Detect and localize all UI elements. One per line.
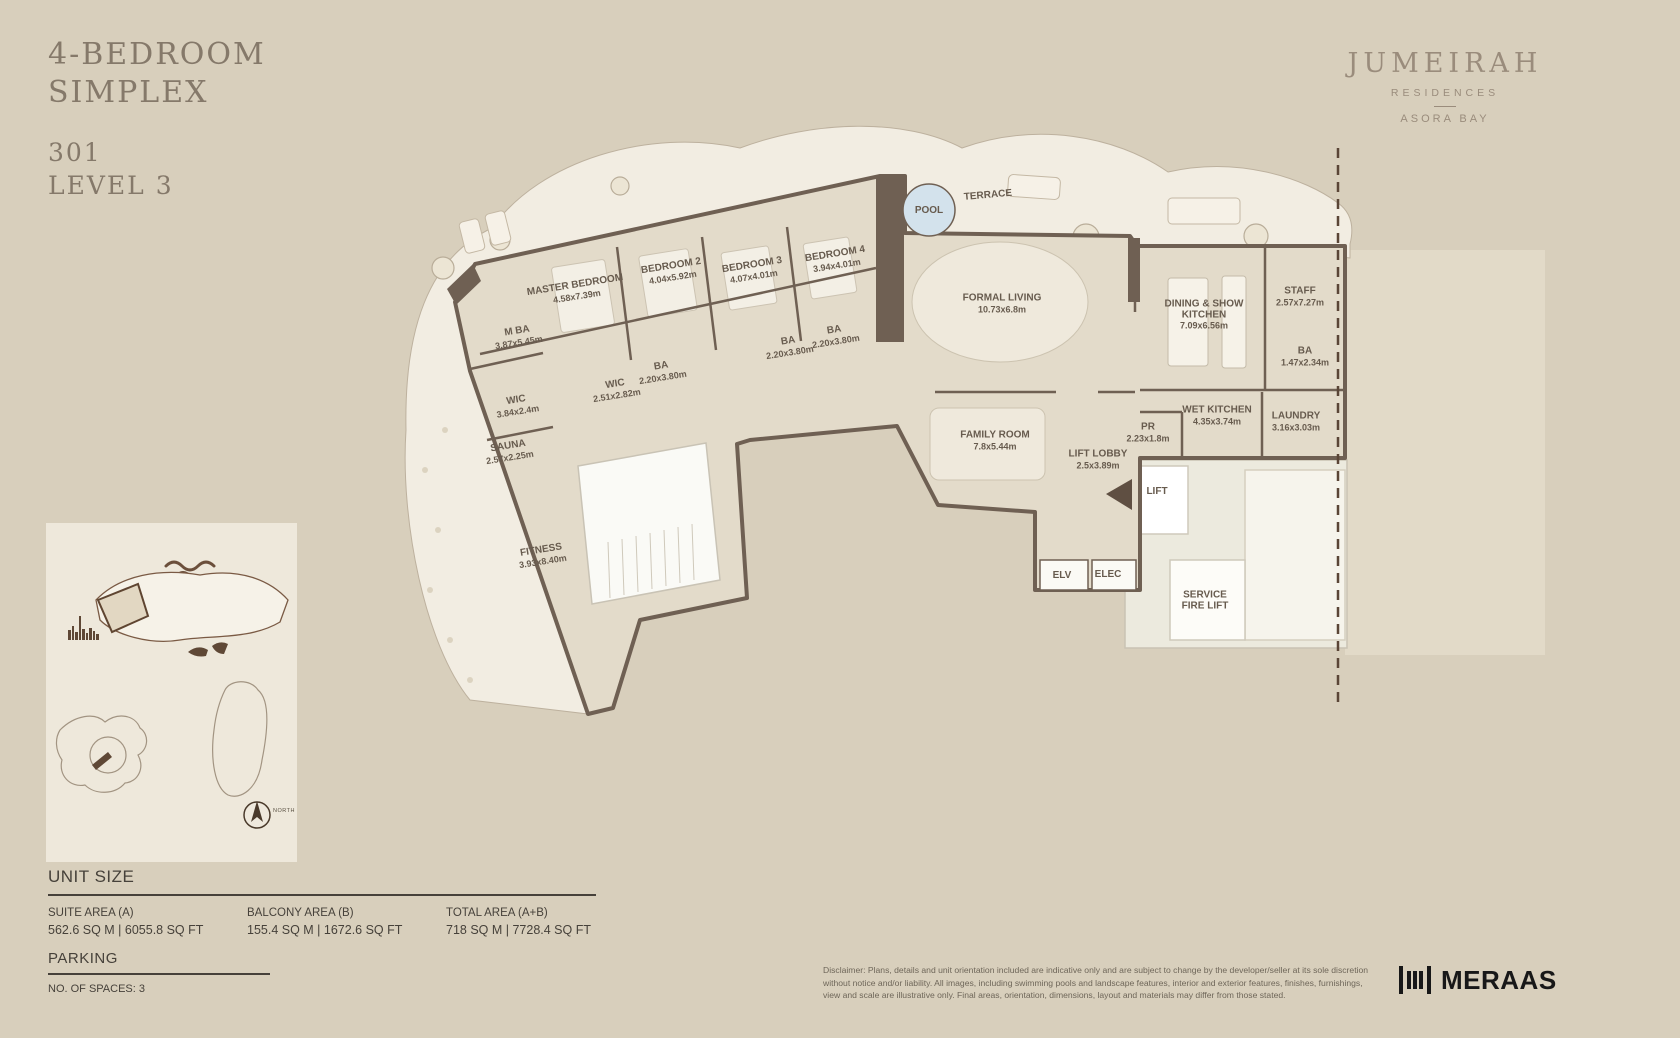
disclaimer-text: Disclaimer: Plans, details and unit orie…: [823, 964, 1375, 1002]
elv-elec-rooms: [1040, 560, 1136, 590]
stairs: [578, 443, 720, 604]
balcony-area-value: 155.4 SQ M | 1672.6 SQ FT: [247, 923, 446, 937]
parking-spaces: NO. OF SPACES: 3: [48, 983, 270, 995]
total-area-label: TOTAL AREA (A+B): [446, 907, 596, 919]
parking-heading: PARKING: [48, 950, 270, 967]
meraas-logo: MERAAS: [1397, 962, 1557, 998]
balcony-area-label: BALCONY AREA (B): [247, 907, 446, 919]
meraas-icon: [1397, 962, 1433, 998]
service-fire-lift-room: [1170, 560, 1245, 640]
meraas-wordmark: MERAAS: [1441, 965, 1557, 996]
key-plan: NORTH: [46, 523, 297, 862]
unit-size-section: UNIT SIZE SUITE AREA (A) 562.6 SQ M | 60…: [48, 867, 596, 937]
unit-size-rule: [48, 894, 596, 896]
north-label: NORTH: [273, 808, 295, 814]
suite-area-value: 562.6 SQ M | 6055.8 SQ FT: [48, 923, 247, 937]
suite-area-label: SUITE AREA (A): [48, 907, 247, 919]
pool-icon: [903, 184, 955, 236]
total-area-value: 718 SQ M | 7728.4 SQ FT: [446, 923, 596, 937]
suite-area-column: SUITE AREA (A) 562.6 SQ M | 6055.8 SQ FT: [48, 907, 247, 937]
parking-section: PARKING NO. OF SPACES: 3: [48, 950, 270, 995]
neighbour-area: [1345, 250, 1545, 655]
total-area-column: TOTAL AREA (A+B) 718 SQ M | 7728.4 SQ FT: [446, 907, 596, 937]
service-core: [1125, 460, 1347, 648]
unit-size-heading: UNIT SIZE: [48, 867, 596, 887]
parking-rule: [48, 973, 270, 975]
balcony-area-column: BALCONY AREA (B) 155.4 SQ M | 1672.6 SQ …: [247, 907, 446, 937]
